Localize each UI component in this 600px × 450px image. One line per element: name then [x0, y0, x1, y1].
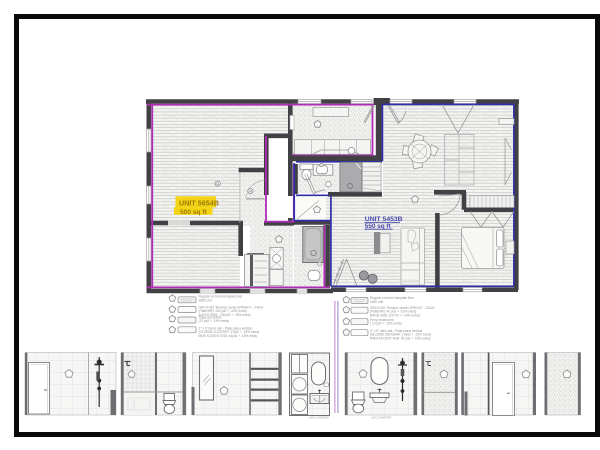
svg-text:1850 unit: 1850 unit [199, 299, 212, 303]
svg-text:RAND 3026: (15 Ft2 + +15% extr: RAND 3026: (15 Ft2 + +15% extra) [370, 313, 420, 317]
svg-text:(12 yd2 + -15% extra): (12 yd2 + -15% extra) [199, 319, 230, 323]
svg-text:( 10 yd2 + -15% extra): ( 10 yd2 + -15% extra) [370, 322, 402, 326]
svg-text:500 sq ft: 500 sq ft [180, 209, 208, 216]
svg-text:1450 unit: 1450 unit [370, 300, 383, 304]
svg-text:UNIT 5654B: UNIT 5654B [179, 198, 219, 207]
svg-text:LAV 1 LAVATORY: LAV 1 LAVATORY [309, 416, 330, 420]
svg-text:LAV 2 LAVATORY: LAV 2 LAVATORY [371, 416, 392, 420]
svg-text:RAIM ACCENT 5GB: 30 yd2 + -15%: RAIM ACCENT 5GB: 30 yd2 + -15% extra) [370, 336, 430, 340]
svg-text:MUR ACCENT 5GB: 44yd2 + -15% e: MUR ACCENT 5GB: 44yd2 + -15% extra) [199, 334, 258, 338]
